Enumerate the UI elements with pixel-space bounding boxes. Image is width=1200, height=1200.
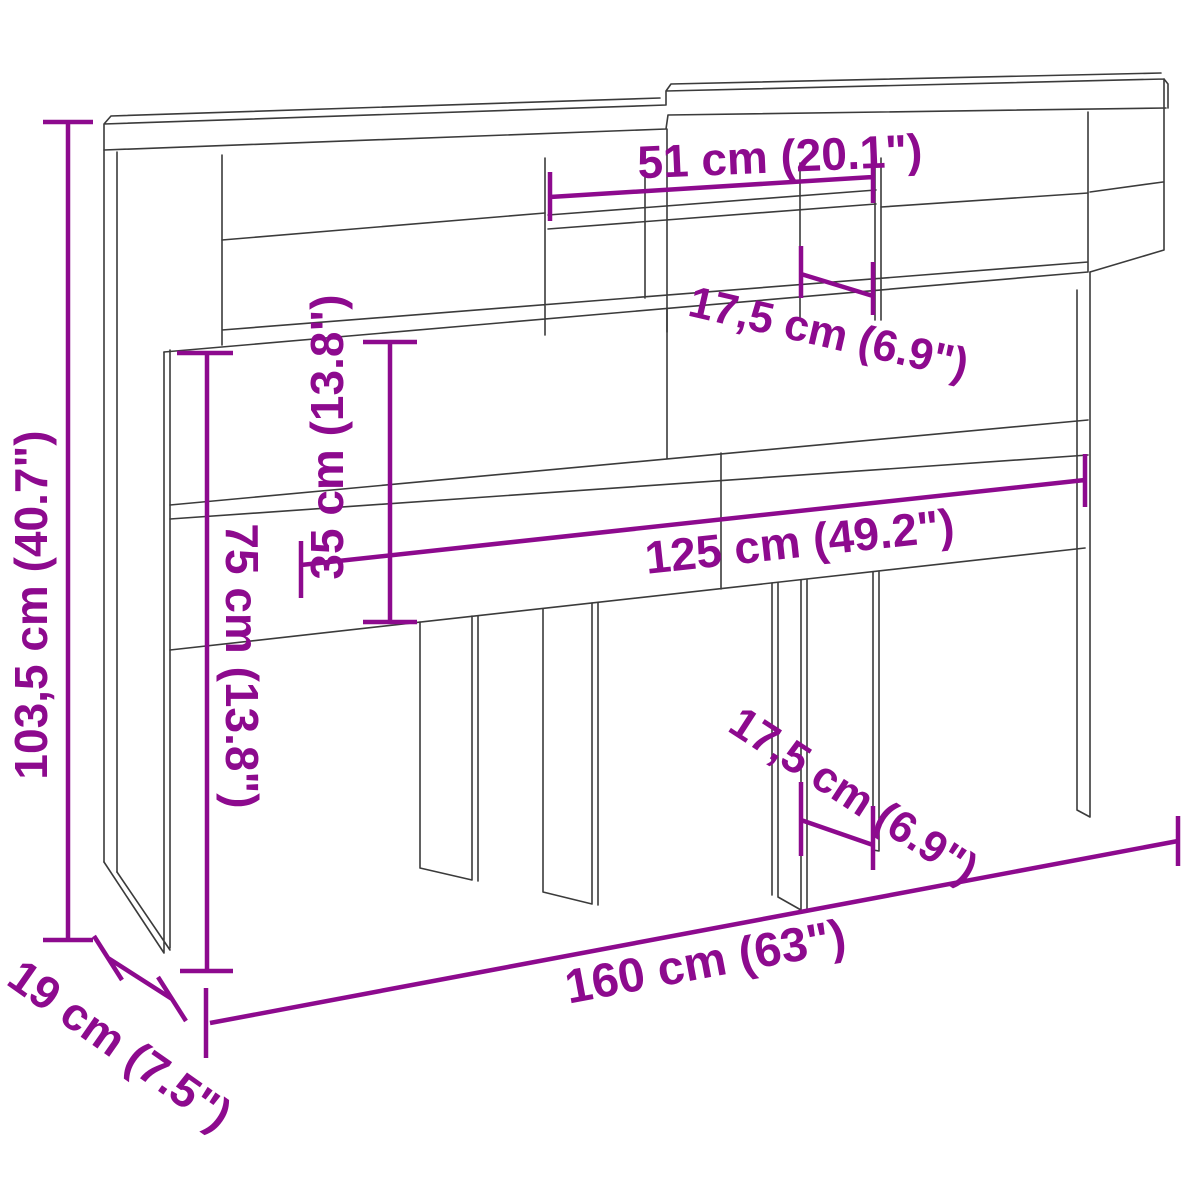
dimension-labels: 103,5 cm (40.7") 51 cm (20.1") 17,5 cm (…	[0, 124, 986, 1141]
label-panel-height: 75 cm (13.8")	[216, 523, 268, 808]
left-leg	[104, 350, 170, 953]
label-overall-height: 103,5 cm (40.7")	[5, 430, 57, 779]
diagram-canvas: 103,5 cm (40.7") 51 cm (20.1") 17,5 cm (…	[0, 0, 1200, 1200]
label-overall-width: 160 cm (63")	[561, 910, 850, 1014]
dimension-lines	[43, 122, 1178, 1058]
dimension-line-hutch-inner-height	[363, 342, 417, 622]
hutch-shelves	[222, 182, 1163, 240]
furniture-outline	[104, 73, 1168, 953]
label-hutch-inner-height: 35 cm (13.8")	[301, 294, 353, 579]
label-support-gap: 17,5 cm (6.9")	[721, 697, 987, 893]
dimension-diagram: 103,5 cm (40.7") 51 cm (20.1") 17,5 cm (…	[0, 0, 1200, 1200]
